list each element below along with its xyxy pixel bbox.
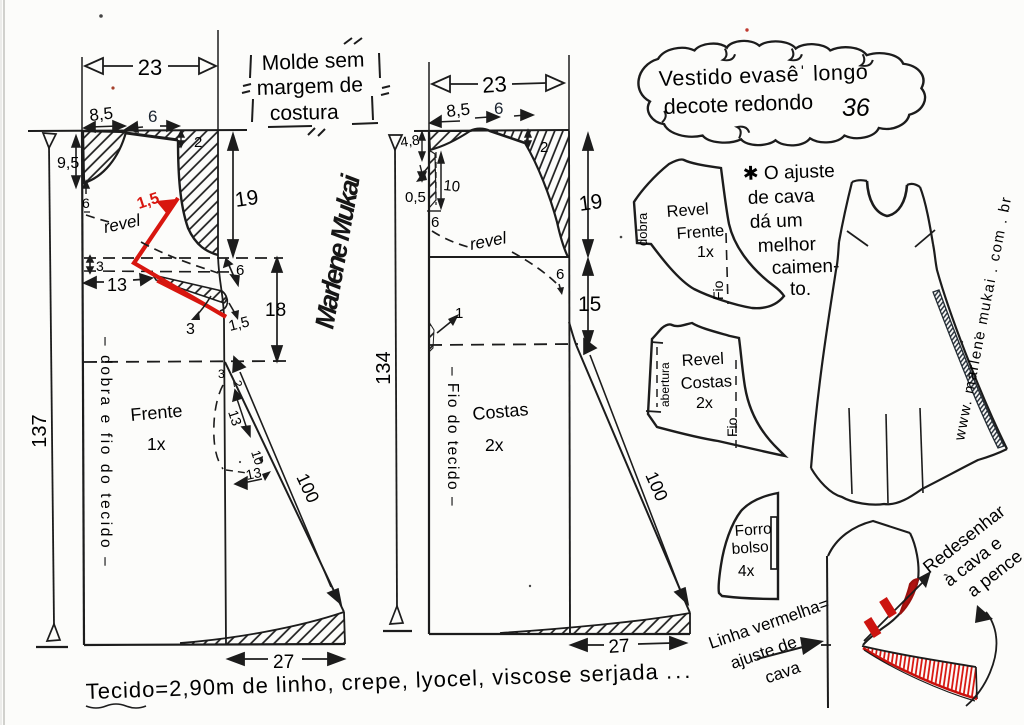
svg-text:4,8: 4,8 [399, 131, 421, 150]
svg-text:36: 36 [842, 94, 870, 122]
svg-text:15: 15 [578, 293, 601, 316]
svg-text:6: 6 [148, 107, 157, 126]
svg-text:melhor: melhor [757, 234, 816, 257]
svg-text:19: 19 [577, 190, 603, 216]
svg-text:10: 10 [443, 177, 461, 196]
svg-text:6: 6 [82, 195, 90, 211]
svg-text:caimen-: caimen- [771, 256, 839, 279]
svg-text:1x: 1x [697, 244, 714, 261]
svg-text:23: 23 [138, 55, 162, 80]
svg-text:23: 23 [481, 71, 507, 98]
svg-text:1: 1 [455, 305, 463, 322]
svg-text:1x: 1x [147, 434, 166, 454]
svg-text:Fio: Fio [710, 280, 726, 300]
svg-text:abertura: abertura [658, 362, 672, 407]
svg-text:13: 13 [107, 275, 127, 295]
svg-text:27: 27 [273, 652, 294, 673]
svg-text:Frente: Frente [676, 222, 725, 243]
svg-text:137: 137 [29, 414, 51, 447]
svg-text:bolso: bolso [731, 538, 769, 558]
svg-text:134: 134 [373, 351, 395, 384]
svg-text:to.: to. [790, 279, 811, 300]
svg-text:2x: 2x [485, 435, 504, 455]
svg-text:– dobra e fio do tecido –: – dobra e fio do tecido – [97, 337, 114, 568]
svg-text:27: 27 [608, 636, 631, 658]
svg-text:dá um: dá um [749, 210, 803, 233]
svg-text:2: 2 [194, 134, 202, 151]
svg-text:costura: costura [270, 101, 340, 125]
svg-text:Revel: Revel [666, 200, 709, 221]
svg-text:– Fio do tecido –: – Fio do tecido – [444, 367, 461, 507]
svg-text:3: 3 [186, 321, 195, 338]
svg-text:3: 3 [218, 367, 225, 381]
svg-text:dobra: dobra [635, 212, 650, 246]
svg-text:18: 18 [265, 300, 286, 321]
svg-text:4x: 4x [738, 563, 755, 580]
svg-text:3: 3 [96, 258, 104, 274]
svg-text:6: 6 [556, 266, 564, 283]
svg-text:Fio: Fio [724, 417, 740, 437]
svg-text:Revel: Revel [681, 350, 724, 370]
svg-text:9,5: 9,5 [57, 155, 79, 172]
svg-text:Costas: Costas [680, 372, 732, 393]
svg-text:8,5: 8,5 [445, 100, 470, 121]
svg-text:8,5: 8,5 [88, 104, 113, 125]
svg-text:19: 19 [233, 186, 259, 212]
svg-text:margem de: margem de [256, 73, 363, 100]
svg-text:2: 2 [540, 139, 548, 156]
svg-text:✱ O ajuste: ✱ O ajuste [742, 161, 835, 185]
svg-text:2x: 2x [696, 395, 713, 412]
svg-text:Molde sem: Molde sem [261, 48, 364, 75]
svg-text:6: 6 [431, 214, 439, 231]
svg-text:Forro: Forro [734, 520, 772, 540]
svg-text:de cava: de cava [747, 186, 815, 209]
svg-text:0,5: 0,5 [405, 189, 426, 206]
svg-text:6: 6 [494, 99, 503, 118]
